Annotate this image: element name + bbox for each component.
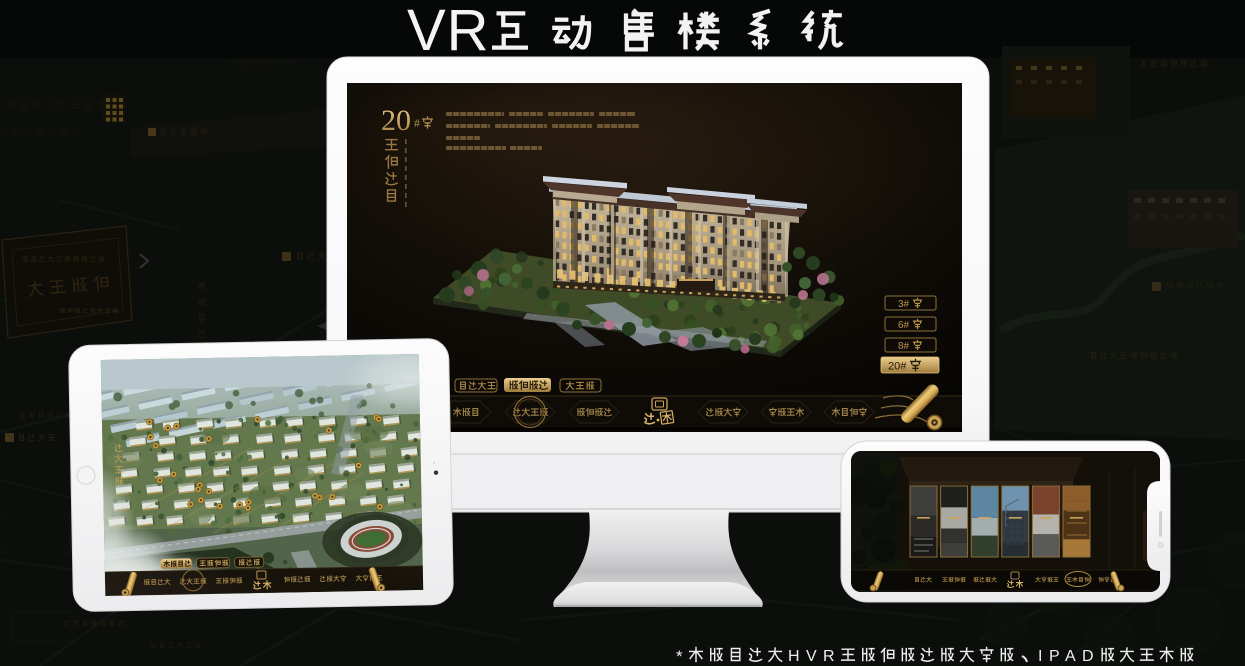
- svg-text:#: #: [414, 116, 420, 130]
- svg-text:VR: VR: [407, 0, 490, 63]
- svg-text:R: R: [823, 648, 835, 665]
- svg-text:8#: 8#: [898, 341, 910, 352]
- svg-text:P: P: [1049, 648, 1060, 665]
- svg-text:V: V: [806, 648, 817, 665]
- svg-text:*: *: [676, 647, 683, 666]
- svg-text:20#: 20#: [888, 361, 907, 373]
- svg-text:H: H: [788, 648, 800, 665]
- svg-text:I: I: [1038, 648, 1042, 665]
- svg-text:A: A: [1065, 648, 1076, 665]
- svg-text:20: 20: [381, 104, 411, 137]
- svg-text:D: D: [1082, 648, 1094, 665]
- svg-text:6#: 6#: [898, 320, 910, 331]
- svg-text:3#: 3#: [898, 299, 910, 310]
